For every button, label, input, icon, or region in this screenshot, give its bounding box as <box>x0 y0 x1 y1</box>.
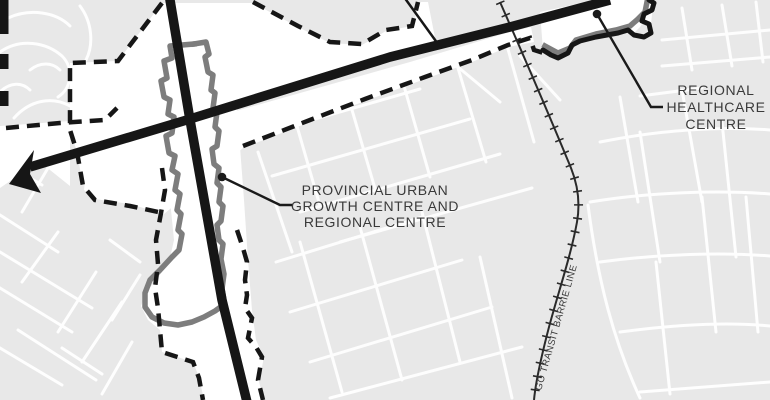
planning-map: PROVINCIAL URBAN GROWTH CENTRE AND REGIO… <box>0 0 770 400</box>
growth-centre-label: PROVINCIAL URBAN GROWTH CENTRE AND REGIO… <box>291 182 459 230</box>
healthcare-label-line3: CENTRE <box>685 116 746 132</box>
healthcare-anchor-dot <box>593 10 602 19</box>
planning-map-canvas: PROVINCIAL URBAN GROWTH CENTRE AND REGIO… <box>0 0 770 400</box>
healthcare-label-line2: HEALTHCARE <box>666 99 765 115</box>
healthcare-label-line1: REGIONAL <box>677 82 754 98</box>
growth-centre-anchor-dot <box>218 173 227 182</box>
growth-centre-label-line1: PROVINCIAL URBAN <box>302 182 449 198</box>
growth-centre-label-line2: GROWTH CENTRE AND <box>291 198 459 214</box>
growth-centre-label-line3: REGIONAL CENTRE <box>304 214 446 230</box>
